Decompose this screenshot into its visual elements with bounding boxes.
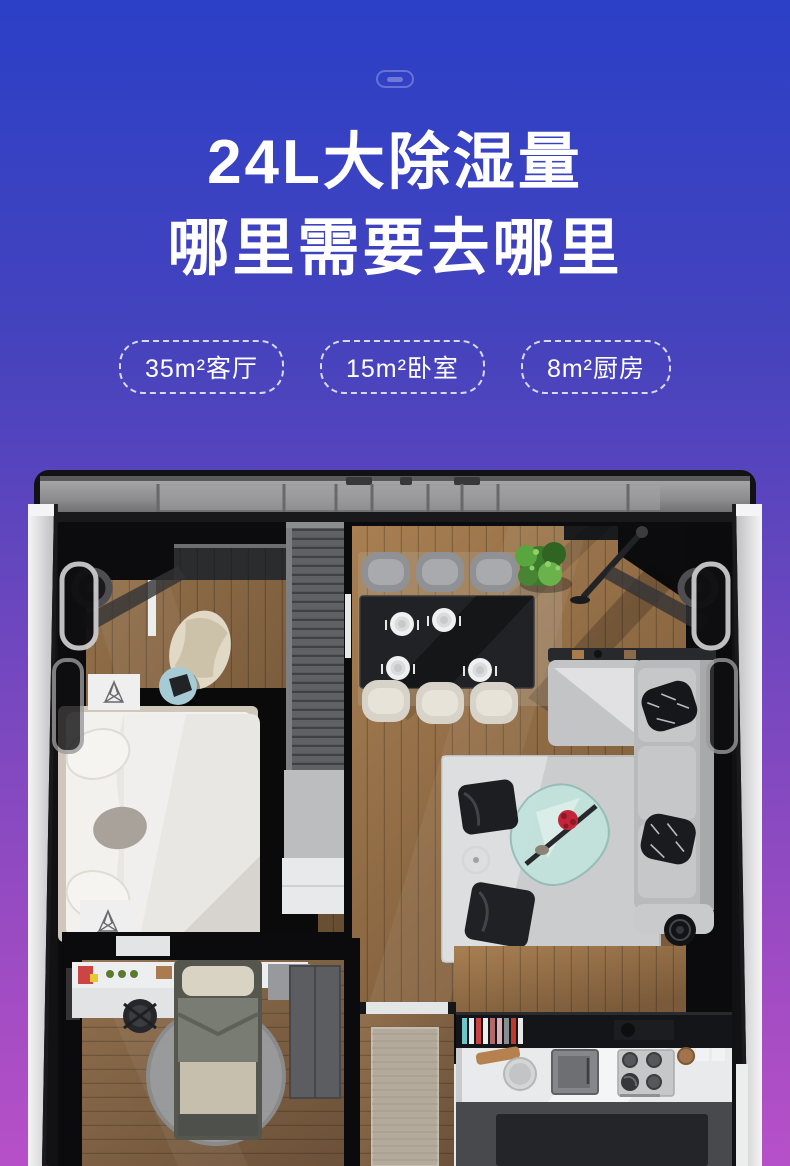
book-shelf (454, 1012, 732, 1048)
top-band (40, 476, 750, 522)
dining-chairs-top (362, 552, 518, 592)
runner-rug (372, 1028, 438, 1166)
speaker (664, 914, 696, 946)
dining-chairs-bottom (362, 680, 518, 724)
promo-page: 24L大除湿量 哪里需要去哪里 35m²客厅 15m²卧室 8m²厨房 (0, 0, 790, 1166)
right-door-jamb (736, 1064, 748, 1166)
study-wardrobe (290, 966, 340, 1098)
study-door (116, 936, 170, 956)
stove (618, 1050, 674, 1097)
books (462, 1018, 523, 1044)
ottoman-1 (457, 778, 519, 835)
study-area (62, 932, 344, 1166)
door-frame-top (358, 1002, 456, 1014)
single-bed (174, 960, 262, 1140)
area-badges: 35m²客厅 15m²卧室 8m²厨房 (0, 340, 790, 394)
sink (504, 1058, 536, 1090)
hallway (352, 1002, 456, 1166)
title-line-1: 24L大除湿量 (0, 120, 790, 206)
badge-kitchen: 8m²厨房 (521, 340, 671, 394)
jar (678, 1048, 694, 1064)
ottoman-2 (463, 881, 536, 949)
handle-icon (376, 70, 414, 88)
dining-door (345, 594, 351, 658)
badge-bedroom: 15m²卧室 (320, 340, 485, 394)
title-line-2: 哪里需要去哪里 (0, 206, 790, 292)
handle-bar (387, 77, 403, 82)
wall-bedroom-dining (344, 522, 352, 938)
floor-plan-image (28, 468, 762, 1166)
dishwasher (552, 1050, 598, 1094)
badge-living-room: 35m²客厅 (119, 340, 284, 394)
page-title: 24L大除湿量 哪里需要去哪里 (0, 120, 790, 291)
dining-table (360, 596, 534, 688)
wardrobe-cabinet (282, 522, 348, 914)
wall-study-hall (344, 938, 360, 1166)
floor-plan-svg (28, 468, 762, 1166)
office-chair (123, 999, 157, 1033)
kitchen-mat (454, 1102, 732, 1166)
nightstand-top (88, 674, 140, 710)
counter (454, 1046, 732, 1102)
